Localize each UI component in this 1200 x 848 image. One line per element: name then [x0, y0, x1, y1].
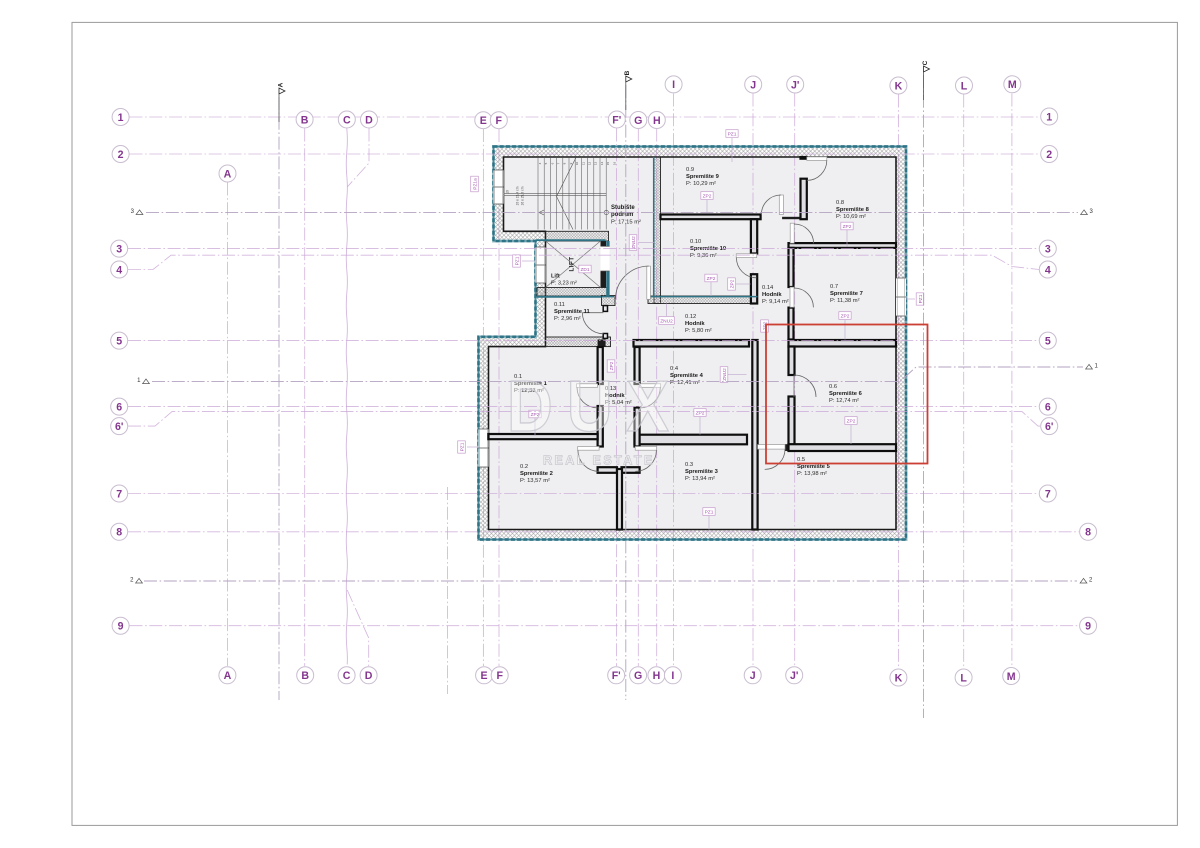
svg-text:10: 10 — [575, 162, 579, 166]
svg-text:LIFT: LIFT — [569, 256, 576, 271]
svg-text:K: K — [895, 672, 903, 684]
svg-text:8: 8 — [1085, 527, 1091, 539]
svg-text:0.2: 0.2 — [520, 464, 528, 470]
svg-text:REAL ESTATE: REAL ESTATE — [543, 454, 655, 468]
svg-text:Spremište 6: Spremište 6 — [829, 391, 863, 397]
svg-text:P: 13,98 m²: P: 13,98 m² — [797, 471, 827, 477]
svg-text:9: 9 — [118, 621, 124, 633]
svg-text:podrum: podrum — [611, 212, 633, 218]
svg-text:G: G — [634, 115, 642, 127]
svg-text:2: 2 — [118, 149, 124, 161]
svg-text:P: 9,36 m²: P: 9,36 m² — [690, 253, 717, 259]
svg-text:Spremište 7: Spremište 7 — [830, 291, 863, 297]
svg-text:P: 9,14 m²: P: 9,14 m² — [762, 299, 789, 305]
svg-text:12: 12 — [588, 162, 592, 166]
svg-text:PZ1: PZ1 — [728, 131, 737, 137]
svg-text:P: 11,38 m²: P: 11,38 m² — [830, 298, 860, 304]
svg-text:PZ1a: PZ1a — [472, 178, 478, 190]
svg-text:E: E — [481, 670, 488, 682]
svg-text:0.8: 0.8 — [836, 200, 844, 206]
svg-text:PZ1: PZ1 — [514, 256, 520, 265]
svg-text:5: 5 — [1045, 335, 1051, 347]
svg-text:J: J — [750, 79, 756, 91]
svg-text:C: C — [343, 114, 351, 126]
svg-text:8: 8 — [116, 527, 122, 539]
svg-text:M: M — [1007, 671, 1016, 683]
svg-text:4: 4 — [1045, 264, 1051, 276]
svg-text:A: A — [277, 82, 284, 87]
svg-text:ZP2: ZP2 — [847, 418, 856, 424]
svg-text:Hodnik: Hodnik — [762, 292, 782, 298]
svg-text:ZP2: ZP2 — [729, 279, 735, 288]
svg-text:J': J' — [791, 79, 799, 91]
svg-text:G: G — [634, 670, 642, 682]
svg-text:PZ1: PZ1 — [459, 442, 465, 451]
svg-text:F': F' — [612, 670, 621, 682]
svg-text:0.14: 0.14 — [762, 285, 774, 291]
svg-text:D: D — [365, 670, 373, 682]
svg-text:3: 3 — [116, 243, 122, 255]
svg-text:E: E — [480, 115, 487, 127]
svg-text:H: H — [653, 670, 661, 682]
svg-text:PZ1: PZ1 — [918, 294, 924, 303]
svg-text:1: 1 — [118, 112, 124, 124]
svg-text:ZNU2: ZNU2 — [722, 368, 728, 381]
svg-text:A: A — [224, 168, 232, 180]
svg-text:PZ1: PZ1 — [705, 509, 714, 515]
svg-text:0.3: 0.3 — [685, 462, 693, 468]
svg-text:P: 13,94 m²: P: 13,94 m² — [685, 476, 715, 482]
svg-text:0.6: 0.6 — [829, 384, 837, 390]
svg-text:6: 6 — [116, 401, 122, 413]
svg-text:ZP2: ZP2 — [843, 224, 852, 230]
svg-text:L: L — [960, 672, 967, 684]
svg-text:Spremište 11: Spremište 11 — [554, 309, 591, 315]
svg-text:ZNU2: ZNU2 — [631, 236, 637, 249]
svg-text:3: 3 — [1045, 243, 1051, 255]
svg-text:P: 3,23 m²: P: 3,23 m² — [551, 281, 577, 287]
svg-text:ZNU2: ZNU2 — [660, 318, 673, 324]
svg-text:P: 2,96 m²: P: 2,96 m² — [554, 316, 581, 322]
svg-text:J: J — [750, 670, 756, 682]
svg-text:7: 7 — [1045, 488, 1051, 500]
svg-text:C: C — [922, 60, 929, 65]
svg-text:D: D — [365, 114, 373, 126]
svg-text:0.11: 0.11 — [554, 302, 565, 308]
svg-text:6: 6 — [1045, 401, 1051, 413]
svg-text:5: 5 — [116, 335, 122, 347]
svg-text:16 x 29,0 cm: 16 x 29,0 cm — [520, 186, 524, 205]
svg-text:J': J' — [790, 670, 798, 682]
svg-text:1: 1 — [1046, 111, 1052, 123]
svg-text:2: 2 — [1046, 149, 1052, 161]
svg-text:10: 10 — [506, 190, 510, 194]
svg-text:Stubište: Stubište — [611, 205, 635, 211]
svg-text:P: 10,69 m²: P: 10,69 m² — [836, 214, 866, 220]
svg-text:ZP2: ZP2 — [841, 313, 850, 319]
svg-text:DUX: DUX — [507, 367, 683, 447]
svg-text:F: F — [496, 115, 503, 127]
svg-text:Spremište 9: Spremište 9 — [686, 174, 720, 180]
svg-text:0.7: 0.7 — [830, 284, 838, 290]
svg-text:10 x 15,4 cm: 10 x 15,4 cm — [516, 186, 520, 205]
svg-text:14: 14 — [600, 162, 604, 166]
svg-text:Spremište 5: Spremište 5 — [797, 464, 831, 470]
svg-text:H: H — [653, 115, 661, 127]
svg-text:6': 6' — [1045, 421, 1053, 433]
svg-text:ZP2: ZP2 — [703, 193, 712, 199]
svg-text:P: 10,29 m²: P: 10,29 m² — [686, 181, 716, 187]
svg-text:B: B — [624, 70, 631, 75]
svg-text:Lift: Lift — [551, 274, 560, 280]
svg-text:F: F — [496, 670, 503, 682]
svg-text:13: 13 — [594, 162, 598, 166]
svg-text:A: A — [224, 670, 232, 682]
svg-text:6': 6' — [115, 421, 123, 433]
svg-text:I: I — [671, 670, 674, 682]
svg-text:B: B — [301, 114, 309, 126]
svg-text:16: 16 — [612, 162, 616, 166]
svg-text:ZD1: ZD1 — [580, 267, 589, 273]
svg-text:0.5: 0.5 — [797, 457, 805, 463]
svg-text:P: 13,57 m²: P: 13,57 m² — [520, 478, 550, 484]
svg-text:Spremište 3: Spremište 3 — [685, 469, 719, 475]
svg-text:0.9: 0.9 — [686, 167, 694, 173]
svg-text:0.10: 0.10 — [690, 239, 701, 245]
svg-text:ZP2: ZP2 — [707, 276, 716, 282]
svg-text:7: 7 — [116, 488, 122, 500]
svg-text:L: L — [961, 80, 968, 92]
svg-text:15: 15 — [606, 162, 610, 166]
svg-text:P: 5,80 m²: P: 5,80 m² — [685, 328, 712, 334]
svg-text:4: 4 — [116, 264, 122, 276]
svg-text:0.12: 0.12 — [685, 314, 696, 320]
svg-text:9: 9 — [1085, 621, 1091, 633]
svg-text:Spremište 2: Spremište 2 — [520, 471, 553, 477]
svg-text:Hodnik: Hodnik — [685, 321, 705, 327]
svg-text:F': F' — [612, 114, 621, 126]
svg-text:K: K — [895, 80, 903, 92]
svg-text:P: 12,74 m²: P: 12,74 m² — [829, 398, 859, 404]
svg-text:11: 11 — [581, 162, 585, 165]
svg-text:M: M — [1008, 79, 1017, 91]
svg-text:I: I — [672, 79, 675, 91]
svg-text:B: B — [301, 670, 309, 682]
svg-text:C: C — [343, 670, 351, 682]
